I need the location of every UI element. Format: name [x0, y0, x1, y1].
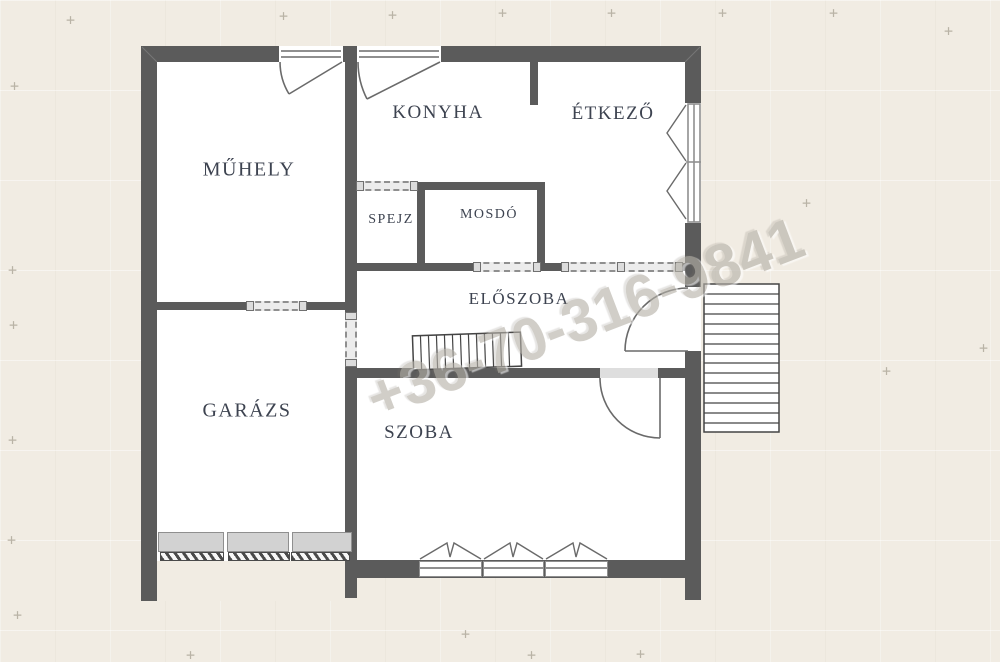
window-glazing-line [484, 567, 543, 569]
room-label-garazs: GARÁZS [202, 400, 291, 423]
wall-mosdo-right [537, 182, 545, 271]
room-label-konyha: KONYHA [392, 102, 483, 124]
room-label-spejz: SPEJZ [368, 212, 414, 228]
sliding-door-post [410, 181, 418, 191]
exterior-stairs [704, 284, 779, 432]
sliding-door-post [533, 262, 541, 272]
szoba-window-2 [483, 561, 544, 577]
sliding-door-post [345, 312, 357, 320]
window-glazing-line [546, 567, 607, 569]
sliding-door-muhely-garazs [246, 301, 307, 311]
wall-mosdo-top [418, 182, 545, 190]
sliding-door-post [345, 359, 357, 367]
sliding-door-post [246, 301, 254, 311]
wall-stub-konyha-etkezo [530, 62, 538, 105]
garage-door-panel [158, 532, 224, 552]
room-label-muhely: MŰHELY [203, 159, 296, 182]
garage-door-panel [292, 532, 352, 552]
sliding-door-post [561, 262, 569, 272]
sliding-door-post [473, 262, 481, 272]
wall-eloszoba-top-a [357, 263, 473, 271]
wall-exterior-left [141, 46, 157, 601]
garage-door-panel [227, 532, 289, 552]
sliding-door-post [299, 301, 307, 311]
szoba-window-1 [419, 561, 482, 577]
window-glazing-line [420, 567, 481, 569]
floor-plan-canvas: MŰHELY KONYHA ÉTKEZŐ SPEJZ MOSDÓ ELŐSZOB… [0, 0, 1000, 662]
sliding-door-spejz [356, 181, 418, 191]
muhely-door-opening [279, 46, 343, 62]
driveway-recess [157, 561, 345, 601]
szoba-window-3 [545, 561, 608, 577]
room-label-mosdo: MOSDÓ [460, 207, 518, 223]
sliding-door-mosdo [473, 262, 541, 272]
room-label-etkezo: ÉTKEZŐ [572, 103, 655, 125]
wall-eloszoba-top-b [541, 263, 561, 271]
wall-muhely-garazs-a [157, 302, 246, 310]
wall-eloszoba-szoba-b [658, 368, 686, 378]
sliding-door-post [356, 181, 364, 191]
szoba-door-threshold [600, 368, 658, 378]
garage-door-sill-hatch [228, 552, 290, 561]
konyha-door-opening [357, 46, 441, 62]
wall-spejz-top-left [345, 182, 356, 190]
garage-door-sill-hatch [291, 552, 350, 561]
etkezo-window-opening [685, 103, 701, 223]
wall-mosdo-left [417, 190, 425, 263]
wall-muhely-garazs-b [307, 302, 345, 310]
garage-door-sill-hatch [160, 552, 224, 561]
